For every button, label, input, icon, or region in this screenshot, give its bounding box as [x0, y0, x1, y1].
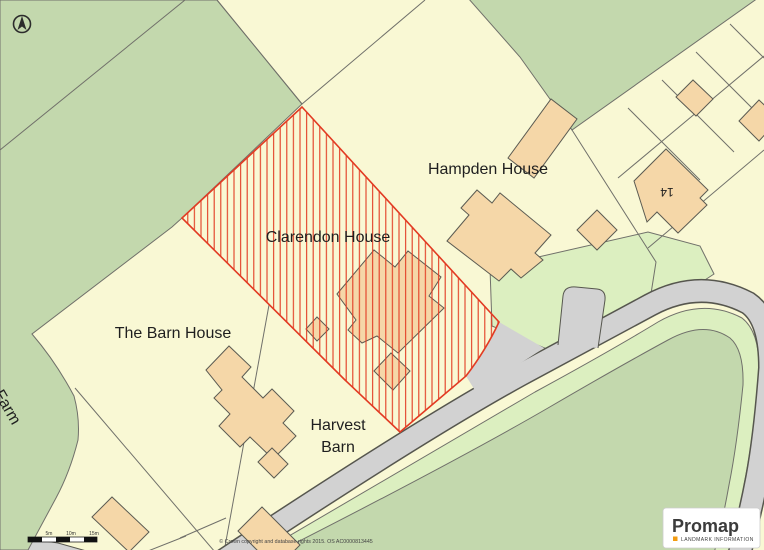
copyright-text: © Crown copyright and database rights 20…	[219, 538, 373, 545]
map-canvas: Hampden House Clarendon House The Barn H…	[0, 0, 764, 550]
driveway-hampden	[558, 287, 605, 348]
label-plot-14: 14	[660, 185, 674, 199]
label-harvest-line1: Harvest	[310, 417, 366, 434]
scale-label-10m: 10m	[66, 531, 76, 537]
label-hampden-house: Hampden House	[428, 161, 548, 178]
logo-tagline: LANDMARK INFORMATION	[681, 537, 754, 543]
map-viewport[interactable]: Hampden House Clarendon House The Barn H…	[0, 0, 764, 550]
driveway-fill	[558, 287, 605, 348]
label-clarendon-house: Clarendon House	[266, 229, 391, 246]
scale-label-15m: 15m	[89, 531, 99, 537]
logo-wordmark: Promap	[672, 516, 739, 536]
label-barn-house: The Barn House	[115, 325, 232, 342]
label-harvest-line2: Barn	[321, 439, 355, 456]
scale-label-5m: 5m	[46, 531, 53, 537]
promap-logo: Promap LANDMARK INFORMATION	[663, 508, 760, 548]
logo-accent-square	[673, 537, 678, 542]
